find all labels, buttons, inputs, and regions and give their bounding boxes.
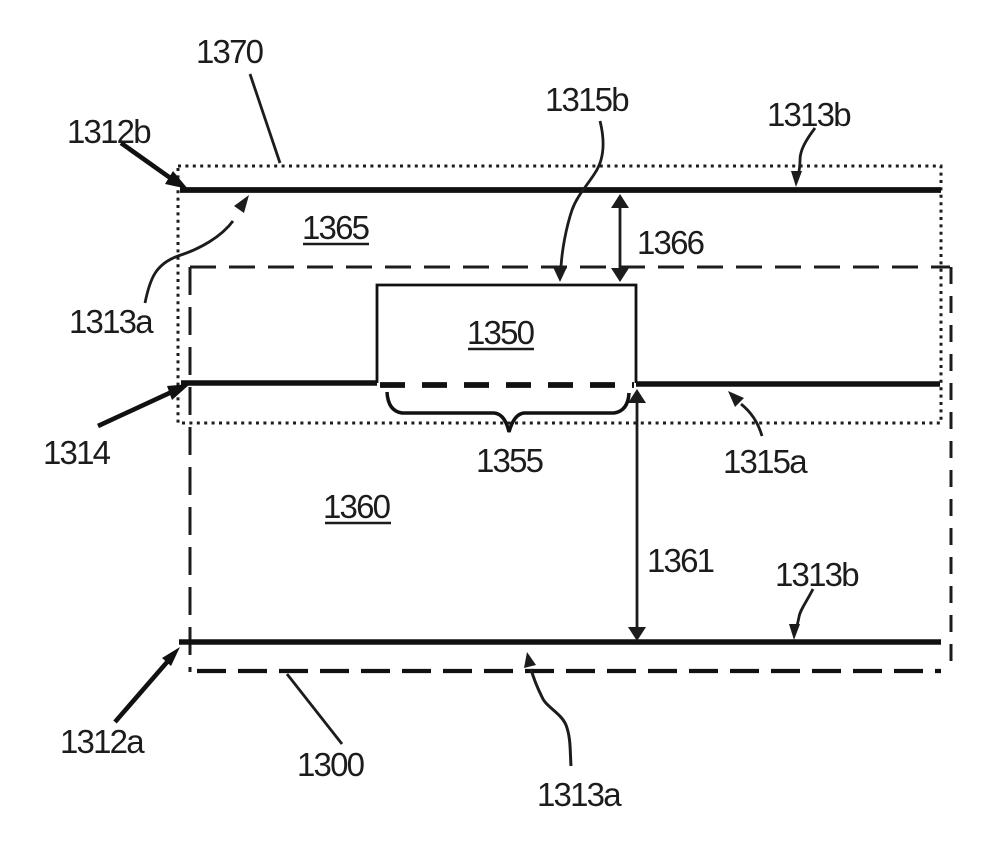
svg-text:1313b: 1313b [775,556,858,593]
svg-text:1313b: 1313b [767,96,850,133]
svg-text:1360: 1360 [323,488,391,525]
svg-text:1312a: 1312a [60,723,145,760]
svg-text:1312b: 1312b [67,113,150,150]
svg-text:1350: 1350 [467,314,535,351]
svg-text:1361: 1361 [647,542,714,579]
svg-text:1315b: 1315b [545,81,628,118]
svg-text:1365: 1365 [302,209,369,246]
svg-text:1313a: 1313a [537,776,622,813]
svg-text:1300: 1300 [297,746,365,783]
svg-text:1314: 1314 [43,434,111,471]
svg-text:1313a: 1313a [69,303,154,340]
svg-text:1370: 1370 [196,33,264,70]
svg-text:1366: 1366 [637,224,704,261]
svg-text:1355: 1355 [476,442,543,479]
svg-text:1315a: 1315a [723,443,808,480]
